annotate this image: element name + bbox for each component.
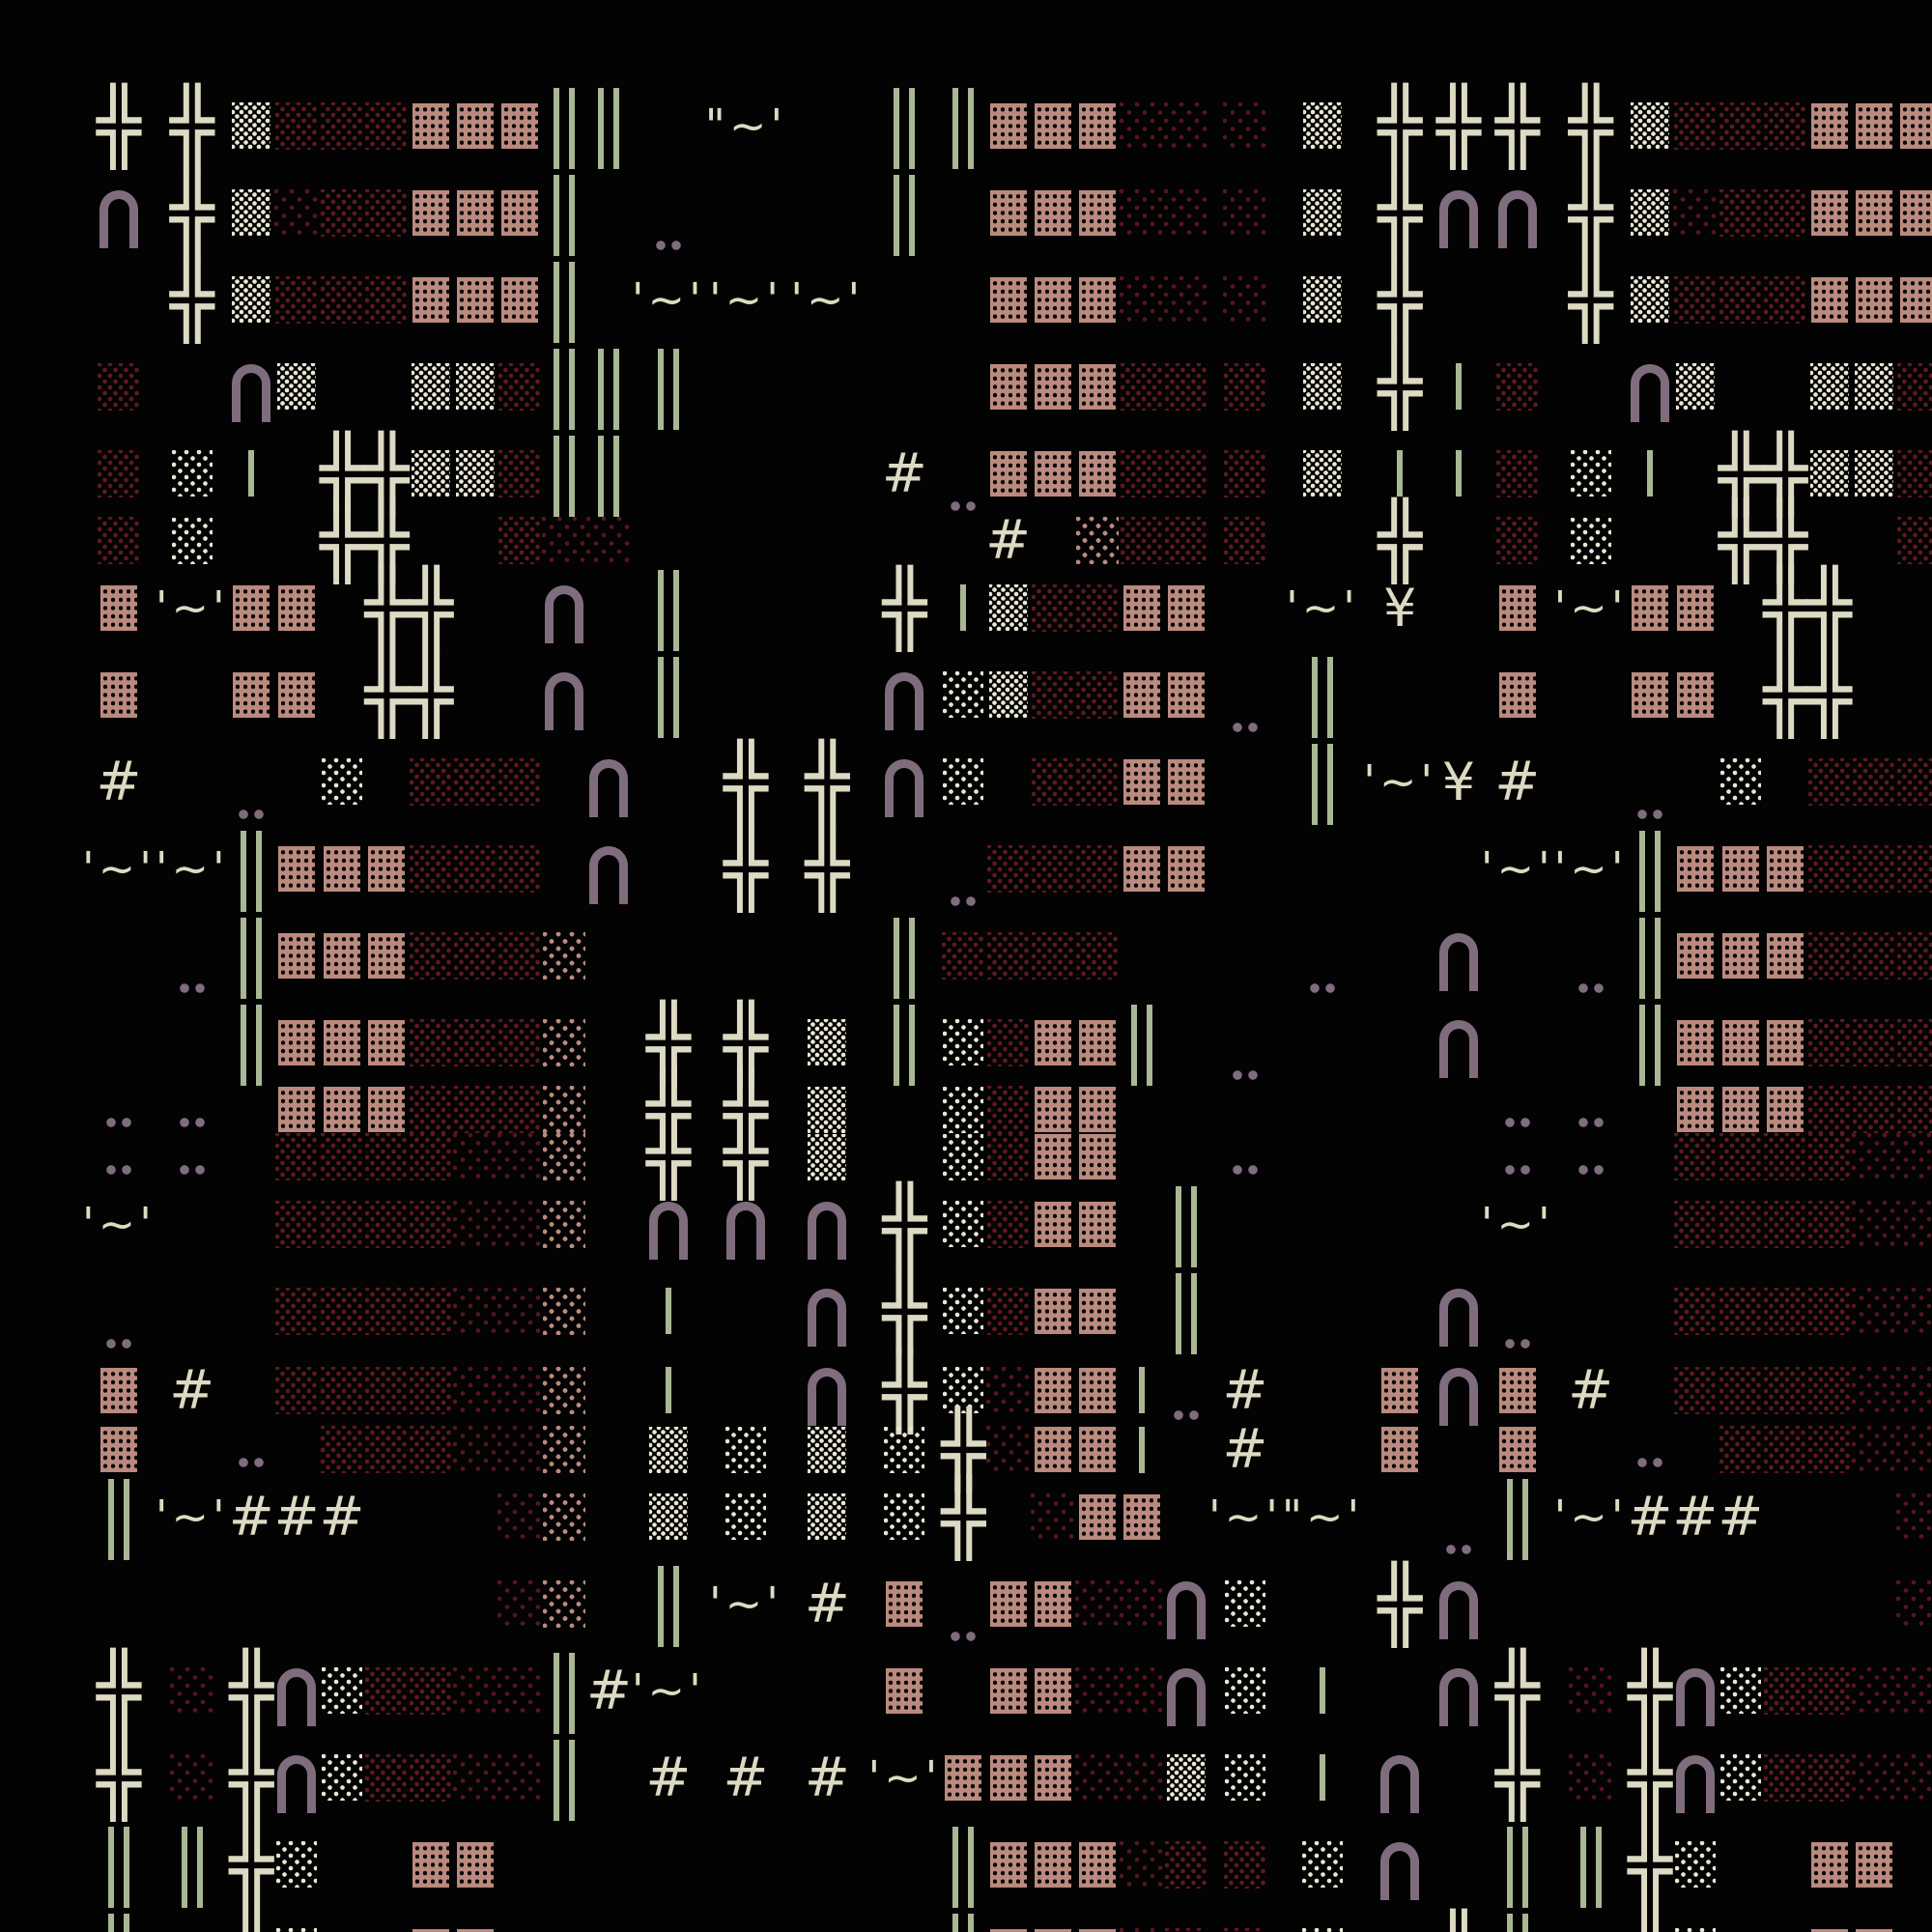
cell-mauve-arch — [867, 651, 941, 738]
cell-cream-dot-block — [409, 343, 453, 430]
cell-empty — [867, 343, 941, 430]
cell-salmon-waffle-block — [1164, 564, 1208, 651]
cell-salmon-waffle-block — [1852, 1908, 1896, 1932]
cell-empty — [274, 1426, 320, 1473]
cell-empty — [786, 430, 867, 517]
salmon-waffle-block-shape — [324, 846, 360, 892]
cell-cream-dot-block — [1807, 430, 1852, 517]
cream-dot-block-shape — [456, 363, 495, 410]
cell-red-dot-block — [274, 1354, 320, 1426]
red-dot-block-shape — [1808, 1201, 1851, 1248]
cell-green-double-pipe — [1282, 651, 1363, 738]
cell-hash-glyph: # — [786, 1734, 867, 1821]
cell-empty — [941, 256, 985, 343]
cream-sparse-dots-shape — [1571, 450, 1611, 497]
green-double-pipe-shape — [1639, 918, 1661, 999]
cell-cream-sparse-dots — [1718, 738, 1763, 825]
cell-empty — [1763, 738, 1807, 825]
cell-red-sparse-dots — [1164, 256, 1208, 343]
salmon-waffle-block-shape — [990, 1581, 1027, 1627]
red-sparse-dots-shape — [586, 517, 631, 564]
red-dot-block-shape — [454, 932, 497, 980]
cell-cream-dot-block — [1628, 169, 1673, 256]
cell-salmon-waffle-block — [1031, 1267, 1075, 1354]
cell-cream-cross: ╬ — [82, 1734, 156, 1821]
cell-empty — [1554, 651, 1628, 738]
cell-red-dot-block — [1896, 430, 1932, 517]
cell-empty — [1554, 343, 1628, 430]
cell-empty — [1363, 1908, 1436, 1932]
cell-red-sparse-dots — [156, 1734, 229, 1821]
salmon-waffle-block-shape — [412, 1929, 449, 1932]
cell-empty — [1436, 1133, 1481, 1180]
salmon-waffle-block-shape — [412, 103, 449, 149]
red-sparse-dots-shape — [1075, 1580, 1120, 1628]
cell-salmon-waffle-block — [409, 1821, 453, 1908]
cell-empty — [409, 517, 453, 564]
red-dot-block-shape — [498, 1086, 541, 1133]
cream-sparse-dots-shape — [943, 1201, 983, 1247]
cell-salmon-waffle-block — [409, 82, 453, 169]
cell-mauve-arch — [1672, 1734, 1718, 1821]
red-dot-block-shape — [365, 102, 408, 150]
salmon-waffle-block-shape — [1079, 1427, 1116, 1472]
cell-empty — [1436, 1086, 1481, 1133]
cell-tilde-motif: '~' — [1208, 1473, 1282, 1560]
tilde-motif-text: '~' — [1554, 845, 1628, 893]
cell-salmon-waffle-block — [274, 825, 320, 912]
cell-mauve-dot-pair — [1554, 912, 1628, 999]
cream-cross-text: ╬ — [1436, 1928, 1481, 1932]
red-dot-block-shape — [1764, 1201, 1806, 1248]
cell-empty — [1896, 1821, 1932, 1908]
cell-red-dot-block — [1718, 82, 1763, 169]
red-dot-block-shape — [365, 1201, 408, 1248]
cream-cross-text: ╬ — [883, 584, 927, 632]
cell-cream-dot-block — [453, 343, 497, 430]
cell-red-sparse-dots — [453, 1133, 497, 1180]
cream-dot-block-shape — [1167, 1754, 1206, 1801]
cell-tilde-motif: '~' — [82, 1180, 156, 1267]
green-double-pipe-shape — [241, 1005, 262, 1086]
salmon-waffle-block-shape — [990, 1755, 1027, 1801]
cell-salmon-waffle-block — [274, 999, 320, 1086]
red-dot-block-shape — [1897, 1086, 1932, 1133]
salmon-waffle-block-shape — [1900, 277, 1932, 323]
cream-dot-block-shape — [808, 1427, 846, 1473]
cream-sparse-dots-shape — [322, 758, 362, 805]
cream-sparse-dots-shape — [276, 1841, 317, 1888]
red-dot-block-shape — [1674, 1367, 1717, 1414]
cell-cream-dot-block — [1852, 430, 1896, 517]
salmon-waffle-block-shape — [1035, 277, 1071, 323]
cell-tilde-motif: '~' — [632, 256, 705, 343]
red-sparse-dots-shape — [497, 1426, 542, 1473]
cell-red-dot-block — [1672, 1133, 1718, 1180]
cell-empty — [542, 825, 586, 912]
cell-cream-cross: ╬ — [82, 1647, 156, 1734]
cell-empty — [867, 1133, 941, 1180]
cream-cross-text: ╬ — [1807, 584, 1852, 632]
mauve-dot-pair-shape — [1637, 810, 1662, 819]
cell-mauve-dot-pair — [1282, 912, 1363, 999]
cell-empty — [586, 1473, 632, 1560]
cell-cream-cross: ╬ — [1481, 82, 1554, 169]
cell-red-sparse-dots — [1075, 1560, 1120, 1647]
cell-empty — [1672, 517, 1718, 564]
cream-sparse-dots-shape — [1675, 1841, 1716, 1888]
cell-mauve-arch — [586, 825, 632, 912]
salmon-waffle-block-shape — [1677, 585, 1714, 631]
cell-salmon-waffle-block — [1075, 1267, 1120, 1354]
red-dot-block-shape — [1808, 845, 1851, 893]
cell-salmon-sparse-dots — [542, 1426, 586, 1473]
cell-cream-sparse-dots — [705, 1473, 786, 1560]
red-dot-block-shape — [1032, 584, 1074, 632]
cell-empty — [1120, 1086, 1164, 1133]
mauve-arch-shape — [1439, 190, 1478, 248]
mauve-dot-pair-shape — [656, 241, 681, 250]
cell-salmon-waffle-block — [1031, 430, 1075, 517]
cell-red-dot-block — [1718, 169, 1763, 256]
green-double-pipe-shape — [554, 1653, 575, 1734]
salmon-waffle-block-shape — [368, 1087, 405, 1132]
mauve-dot-pair-shape — [1578, 1118, 1604, 1127]
salmon-waffle-block-shape — [501, 103, 538, 149]
cell-red-sparse-dots — [985, 1354, 1031, 1426]
cell-empty — [586, 1908, 632, 1932]
cream-dot-block-shape — [456, 450, 495, 497]
cell-empty — [985, 738, 1031, 825]
cell-cream-sparse-dots — [1282, 1821, 1363, 1908]
cell-empty — [1164, 1086, 1208, 1133]
red-dot-block-shape — [365, 1754, 408, 1802]
cell-red-dot-block — [1481, 430, 1554, 517]
mauve-dot-pair-shape — [180, 1165, 205, 1175]
cream-cross-text: ╬ — [1569, 276, 1613, 324]
cell-mauve-arch — [786, 1354, 867, 1426]
green-single-pipe-shape — [1139, 1427, 1145, 1473]
cell-mauve-arch — [1363, 1734, 1436, 1821]
cell-salmon-waffle-block — [1075, 999, 1120, 1086]
cell-cream-cross: ╬ — [320, 517, 365, 564]
salmon-waffle-block-shape — [278, 1087, 315, 1132]
green-double-pipe-shape — [554, 175, 575, 256]
red-dot-block-shape — [454, 758, 497, 806]
red-sparse-dots-shape — [497, 1133, 542, 1180]
cell-salmon-waffle-block — [985, 1908, 1031, 1932]
cream-cross-text: ╬ — [364, 450, 409, 497]
cell-empty — [705, 564, 786, 651]
cell-empty — [229, 517, 274, 564]
mauve-dot-pair-shape — [1233, 1070, 1258, 1080]
salmon-waffle-block-shape — [278, 585, 315, 631]
cell-cream-sparse-dots — [1208, 1734, 1282, 1821]
cell-cream-dot-block — [274, 343, 320, 430]
cell-red-dot-block — [1075, 912, 1120, 999]
tilde-motif-text: '~' — [1554, 1493, 1628, 1541]
cream-cross-text: ╬ — [805, 845, 849, 893]
red-sparse-dots-shape — [497, 1754, 542, 1802]
cell-cream-cross: ╬ — [867, 1267, 941, 1354]
red-dot-block-shape — [987, 1288, 1030, 1335]
cream-cross-text: ╬ — [320, 450, 364, 497]
red-dot-block-shape — [98, 517, 140, 564]
cell-empty — [1208, 912, 1282, 999]
cell-red-dot-block — [1807, 912, 1852, 999]
yen-glyph-text: ¥ — [1442, 758, 1475, 806]
hash-glyph-text: # — [1494, 758, 1540, 806]
cell-cream-dot-block — [786, 1133, 867, 1180]
cell-mauve-dot-pair — [1554, 1133, 1628, 1180]
red-dot-block-shape — [321, 189, 363, 237]
cell-salmon-waffle-block — [985, 1821, 1031, 1908]
red-sparse-dots-shape — [1896, 1754, 1932, 1802]
salmon-waffle-block-shape — [1632, 672, 1668, 718]
cell-cream-cross: ╬ — [1481, 1734, 1554, 1821]
yen-glyph-text: ¥ — [1383, 584, 1416, 632]
cell-tilde-motif: '~' — [867, 1734, 941, 1821]
cell-empty — [1363, 912, 1436, 999]
cell-red-dot-block — [1718, 1180, 1763, 1267]
green-double-pipe-shape — [241, 831, 262, 912]
green-double-pipe-shape — [554, 88, 575, 169]
cell-cream-cross: ╬ — [364, 651, 409, 738]
cell-salmon-waffle-block — [1718, 825, 1763, 912]
cell-mauve-dot-pair — [1628, 1426, 1673, 1473]
cell-empty — [409, 1560, 453, 1647]
cell-green-double-pipe — [82, 1473, 156, 1560]
red-sparse-dots-shape — [1896, 1667, 1932, 1715]
salmon-waffle-block-shape — [368, 933, 405, 979]
cell-salmon-waffle-block — [1718, 912, 1763, 999]
green-double-pipe-shape — [894, 918, 915, 999]
cell-salmon-sparse-dots — [542, 912, 586, 999]
cell-empty — [705, 517, 786, 564]
red-sparse-dots-shape — [1120, 1667, 1164, 1715]
cell-red-dot-block — [274, 1180, 320, 1267]
cell-salmon-waffle-block — [1075, 82, 1120, 169]
cell-red-dot-block — [409, 1086, 453, 1133]
cell-salmon-waffle-block — [497, 169, 542, 256]
cell-empty — [586, 999, 632, 1086]
red-sparse-dots-shape — [170, 1754, 214, 1802]
cell-red-sparse-dots — [453, 1180, 497, 1267]
cell-red-dot-block — [497, 825, 542, 912]
cell-green-double-pipe — [1164, 1267, 1208, 1354]
cell-cream-cross: ╬ — [1807, 564, 1852, 651]
cell-red-dot-block — [409, 1354, 453, 1426]
cell-empty — [1628, 1560, 1673, 1647]
cell-cream-sparse-dots — [941, 999, 985, 1086]
cell-cream-dot-block — [1282, 343, 1363, 430]
green-double-pipe-shape — [598, 349, 619, 430]
hash-glyph-text: # — [169, 1367, 214, 1414]
cell-green-double-pipe — [1628, 999, 1673, 1086]
cell-red-dot-block — [941, 912, 985, 999]
cell-red-dot-block — [1807, 1180, 1852, 1267]
cell-empty — [1554, 738, 1628, 825]
cell-green-double-pipe — [1481, 1908, 1554, 1932]
cell-tilde-motif: '~' — [82, 825, 156, 912]
cell-empty — [705, 1647, 786, 1734]
cell-salmon-waffle-block — [453, 1908, 497, 1932]
cell-empty — [1164, 1473, 1208, 1560]
cell-green-single-pipe — [229, 430, 274, 517]
cell-empty — [274, 517, 320, 564]
red-dot-block-shape — [275, 276, 318, 324]
mauve-arch-shape — [1676, 1755, 1715, 1813]
cell-cream-sparse-dots — [1282, 1908, 1363, 1932]
red-sparse-dots-shape — [1852, 1367, 1896, 1414]
cell-red-dot-block — [1763, 1133, 1807, 1180]
cell-empty — [320, 1908, 365, 1932]
mauve-dot-pair-shape — [106, 1118, 131, 1127]
mauve-dot-pair-shape — [1505, 1339, 1530, 1349]
red-dot-block-shape — [1121, 450, 1163, 497]
cell-cream-sparse-dots — [320, 1734, 365, 1821]
red-dot-block-shape — [1808, 1426, 1851, 1473]
red-sparse-dots-shape — [1223, 276, 1267, 324]
cream-cross-text: ╬ — [1569, 102, 1613, 150]
red-dot-block-shape — [1853, 1086, 1895, 1133]
cell-red-sparse-dots — [1554, 1647, 1628, 1734]
cell-salmon-sparse-dots — [542, 1180, 586, 1267]
cell-salmon-waffle-block — [1672, 651, 1718, 738]
cell-salmon-waffle-block — [985, 1560, 1031, 1647]
cell-salmon-waffle-block — [1031, 343, 1075, 430]
cell-salmon-waffle-block — [1164, 738, 1208, 825]
mauve-arch-shape — [1439, 1368, 1478, 1426]
cream-cross-text: ╬ — [1719, 517, 1763, 564]
cell-cream-sparse-dots — [1672, 1821, 1718, 1908]
salmon-waffle-block-shape — [368, 1020, 405, 1065]
cell-green-double-pipe — [867, 82, 941, 169]
cell-red-dot-block — [1718, 1426, 1763, 1473]
salmon-waffle-block-shape — [886, 1581, 923, 1627]
cell-red-dot-block — [320, 1180, 365, 1267]
cell-cream-cross: ╬ — [1628, 1821, 1673, 1908]
cell-salmon-waffle-block — [1763, 999, 1807, 1086]
green-double-pipe-shape — [952, 1914, 974, 1932]
cell-empty — [786, 564, 867, 651]
cell-salmon-waffle-block — [1031, 1133, 1075, 1180]
cream-sparse-dots-shape — [1720, 1667, 1761, 1714]
cell-empty — [1763, 1908, 1807, 1932]
salmon-waffle-block-shape — [278, 933, 315, 979]
salmon-waffle-block-shape — [1035, 1427, 1071, 1472]
red-dot-block-shape — [1165, 363, 1207, 411]
red-dot-block-shape — [410, 1019, 452, 1066]
salmon-waffle-block-shape — [1499, 585, 1536, 631]
cell-salmon-waffle-block — [1120, 564, 1164, 651]
green-double-pipe-shape — [894, 88, 915, 169]
red-dot-block-shape — [1808, 1019, 1851, 1066]
salmon-waffle-block-shape — [501, 277, 538, 323]
red-dot-block-shape — [1165, 1841, 1207, 1889]
cell-salmon-waffle-block — [1031, 1354, 1075, 1426]
red-sparse-dots-shape — [453, 1667, 497, 1715]
salmon-waffle-block-shape — [1123, 672, 1160, 718]
green-double-pipe-shape — [658, 1566, 679, 1647]
cream-dot-block-shape — [1303, 276, 1342, 323]
cream-cross-text: ╬ — [170, 189, 214, 237]
cell-cream-dot-block — [229, 169, 274, 256]
red-dot-block-shape — [1764, 189, 1806, 237]
cell-salmon-waffle-block — [1120, 651, 1164, 738]
cell-mauve-arch — [1628, 343, 1673, 430]
cell-empty — [586, 651, 632, 738]
green-double-pipe-shape — [108, 1479, 129, 1560]
cell-empty — [1718, 1821, 1763, 1908]
cell-hash-glyph: # — [1481, 738, 1554, 825]
hash-glyph-text: # — [96, 758, 141, 806]
green-double-pipe-shape — [108, 1914, 129, 1932]
cell-empty — [320, 343, 365, 430]
cell-cream-cross: ╬ — [786, 738, 867, 825]
cream-cross-text: ╬ — [1495, 102, 1540, 150]
red-dot-block-shape — [498, 932, 541, 980]
mauve-dot-pair-shape — [1505, 1118, 1530, 1127]
cell-salmon-waffle-block — [1672, 825, 1718, 912]
cell-red-dot-block — [1672, 82, 1718, 169]
ascii-art-grid: ╬╬"~'╬╬╬╬╬╬╬╬'~''~''~'╬╬'~'╬╬╬#╬╬╬╬#╬╬╬'… — [82, 82, 1850, 1850]
red-dot-block-shape — [987, 1086, 1030, 1133]
cell-mauve-arch — [1436, 912, 1481, 999]
red-sparse-dots-shape — [453, 1367, 497, 1414]
cell-empty — [867, 825, 941, 912]
cell-empty — [786, 1647, 867, 1734]
cell-red-dot-block — [1807, 738, 1852, 825]
cream-cross-text: ╬ — [883, 1288, 927, 1335]
red-dot-block-shape — [1076, 671, 1119, 719]
red-dot-block-shape — [1808, 1754, 1851, 1802]
green-double-pipe-shape — [1312, 657, 1333, 738]
cell-mauve-dot-pair — [156, 912, 229, 999]
cell-cream-sparse-dots — [320, 1647, 365, 1734]
cell-cream-sparse-dots — [705, 1426, 786, 1473]
salmon-waffle-block-shape — [457, 277, 494, 323]
cell-empty — [1282, 1426, 1363, 1473]
red-dot-block-shape — [987, 1201, 1030, 1248]
cream-dot-block-shape — [412, 450, 450, 497]
cell-red-sparse-dots — [453, 1734, 497, 1821]
cell-red-dot-block — [364, 256, 409, 343]
cell-salmon-waffle-block — [985, 82, 1031, 169]
salmon-waffle-block-shape — [1811, 1842, 1848, 1888]
hash-glyph-text: # — [985, 517, 1031, 564]
cell-red-dot-block — [1718, 256, 1763, 343]
cell-empty — [705, 1267, 786, 1354]
cell-empty — [705, 1354, 786, 1426]
mauve-dot-pair-shape — [106, 1339, 131, 1349]
green-double-pipe-shape — [554, 349, 575, 430]
cell-cream-dot-block — [985, 564, 1031, 651]
cell-empty — [229, 1133, 274, 1180]
cell-tilde-motif: '~' — [156, 825, 229, 912]
mauve-dot-pair-shape — [180, 983, 205, 993]
salmon-waffle-block-shape — [1123, 585, 1160, 631]
cell-red-dot-block — [1896, 343, 1932, 430]
cell-green-double-pipe — [586, 343, 632, 430]
cell-cream-cross: ╬ — [1363, 517, 1436, 564]
cell-salmon-waffle-block — [82, 564, 156, 651]
cell-hash-glyph: # — [229, 1473, 274, 1560]
cell-cream-cross: ╬ — [941, 1426, 985, 1473]
cell-red-sparse-dots — [453, 1354, 497, 1426]
cell-red-dot-block — [1672, 1354, 1718, 1426]
green-single-pipe-shape — [666, 1288, 671, 1334]
